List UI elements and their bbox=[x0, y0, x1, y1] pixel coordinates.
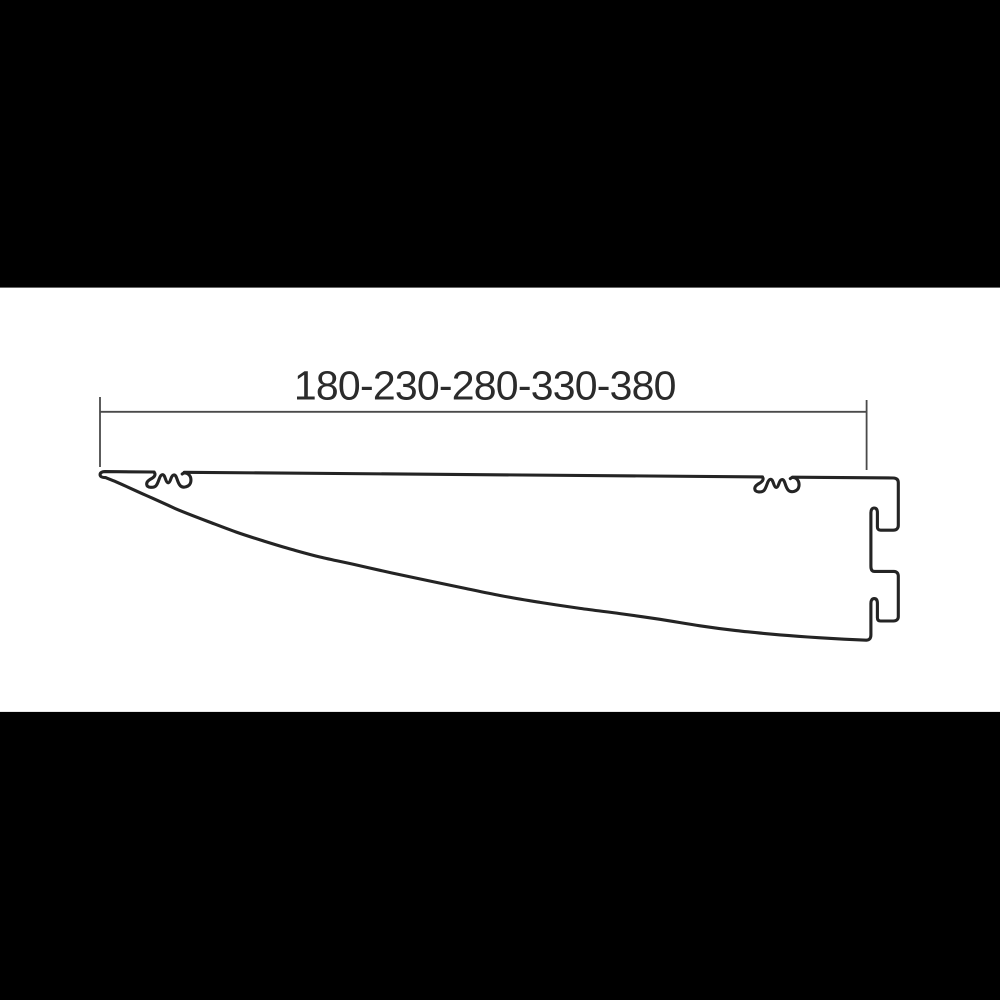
svg-text:180-230-280-330-380: 180-230-280-330-380 bbox=[294, 363, 676, 409]
